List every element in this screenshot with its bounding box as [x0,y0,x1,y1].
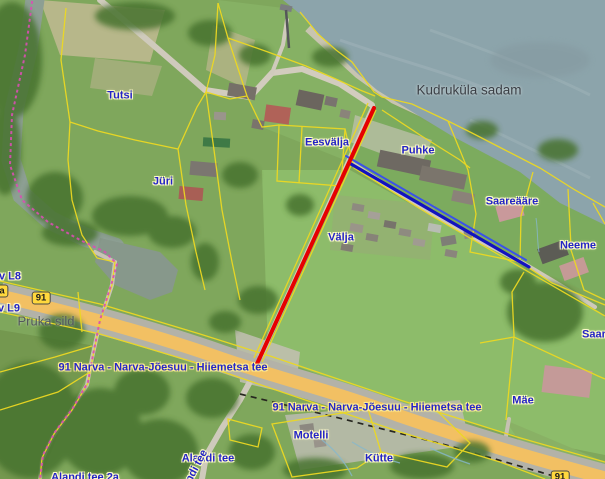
blue-measure-line-secondary[interactable] [346,156,526,260]
overlay-lines-layer [0,0,605,479]
blue-measure-line[interactable] [351,164,529,267]
map-viewport[interactable]: TutsiJüriEesväljaPuhkeVäljaSaareääreNeem… [0,0,605,479]
red-measure-line[interactable] [256,108,374,366]
